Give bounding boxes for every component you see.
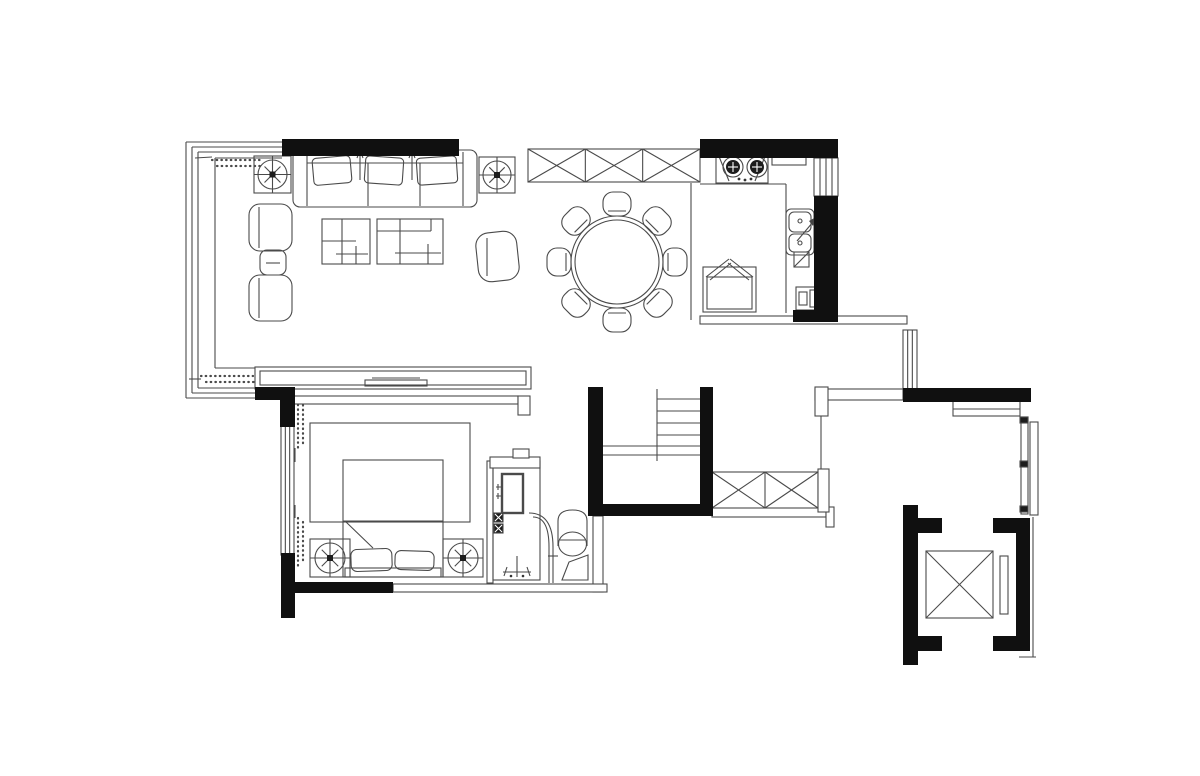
toilet-seat xyxy=(559,532,587,556)
dining-chair-shell xyxy=(603,192,631,216)
hallway-cabinet-end xyxy=(818,469,829,512)
stair-left-wall xyxy=(588,387,603,516)
sliding-door-stop xyxy=(1020,417,1028,423)
dining-chair-shell xyxy=(663,248,687,276)
stove-knob xyxy=(750,178,753,181)
dining-chair xyxy=(640,285,677,322)
floor-lamp-core xyxy=(494,172,500,178)
accent-chair xyxy=(475,230,521,283)
bathroom-wall xyxy=(487,461,493,583)
dining-chair-shell xyxy=(640,285,677,322)
nightstand-lamp-core xyxy=(460,555,466,561)
dining-chair xyxy=(603,308,631,332)
bathroom-side-wall xyxy=(593,516,603,592)
dining-chair xyxy=(663,248,687,276)
armchair xyxy=(249,204,292,251)
floor-drain xyxy=(510,575,513,578)
dining-chair-shell xyxy=(547,248,571,276)
sink-drain xyxy=(798,241,802,245)
bedroom-top-wall-step xyxy=(518,396,530,415)
sliding-door-stop xyxy=(1020,506,1028,512)
bedroom-bottom-wall-black xyxy=(281,582,393,593)
dining-chair-seat xyxy=(647,292,660,305)
floor-plan-canvas xyxy=(0,0,1200,776)
bed-headboard xyxy=(345,568,441,577)
floor-drain xyxy=(522,575,525,578)
fridge-inner xyxy=(707,277,752,309)
doorway-frame xyxy=(953,400,1020,416)
dining-chair xyxy=(603,192,631,216)
kitchen-wall-box xyxy=(794,252,809,267)
sofa-pillow xyxy=(416,156,458,186)
dining-chair xyxy=(547,248,571,276)
dining-chair-seat xyxy=(646,220,659,233)
bathroom-door xyxy=(562,555,588,580)
nightstand-lamp-core xyxy=(327,555,333,561)
vanity-mirror xyxy=(502,474,523,513)
elevator-door xyxy=(1000,556,1008,614)
sink-drain xyxy=(798,219,802,223)
dining-table xyxy=(575,220,659,304)
vanity-cap xyxy=(513,449,529,458)
water-heater-inner xyxy=(799,292,807,305)
stair-right-wall xyxy=(700,387,713,508)
mirror-mark xyxy=(496,484,501,490)
elevator-right-wall xyxy=(1016,533,1030,636)
dining-chair-seat xyxy=(575,292,588,305)
elevator-stub xyxy=(918,636,942,651)
sofa xyxy=(293,150,477,207)
armchair xyxy=(249,275,292,321)
dining-chair xyxy=(558,285,595,322)
sliding-door-panel xyxy=(1030,422,1038,515)
hall-column xyxy=(815,387,828,416)
hallway-window xyxy=(903,330,917,390)
living-top-wall xyxy=(282,139,459,156)
sofa-pillow xyxy=(312,155,352,185)
kitchen-bottom-wall xyxy=(793,310,838,322)
stove-knob xyxy=(738,178,741,181)
dining-chair xyxy=(639,203,676,240)
kitchen-top-wall xyxy=(700,139,838,158)
elevator-stub xyxy=(918,518,942,533)
toilet xyxy=(558,510,587,546)
dining-chair-shell xyxy=(603,308,631,332)
bed-blanket-fold xyxy=(345,521,373,548)
sliding-door-stop xyxy=(1020,461,1028,467)
bedroom-bottom-wall xyxy=(393,584,607,592)
sofa-pillow xyxy=(364,156,404,186)
elevator-left-wall xyxy=(903,505,918,665)
elevator-stub xyxy=(993,518,1030,533)
mirror-mark xyxy=(496,493,501,499)
stair-bottom-wall xyxy=(588,504,713,516)
bed xyxy=(343,460,443,577)
kitchen-right-wall xyxy=(814,196,838,320)
coffee-table xyxy=(377,219,443,264)
floor-lamp-core xyxy=(270,172,276,178)
dining-chair-shell xyxy=(639,203,676,240)
vanity-top xyxy=(490,457,540,468)
stove-knob xyxy=(744,179,747,182)
dining-chair-shell xyxy=(558,203,595,240)
floor-plan-drawing xyxy=(0,0,1200,776)
dining-chair-seat xyxy=(575,220,588,233)
bedroom-top-wall xyxy=(293,396,518,404)
bedroom-window xyxy=(281,425,294,555)
dining-chair xyxy=(558,203,595,240)
dining-chair-shell xyxy=(558,285,595,322)
elevator-stub xyxy=(993,636,1030,651)
hallway-right-wall xyxy=(903,388,1031,402)
bedroom-rug xyxy=(310,423,470,522)
bedroom-left-wall-upper xyxy=(280,387,295,427)
